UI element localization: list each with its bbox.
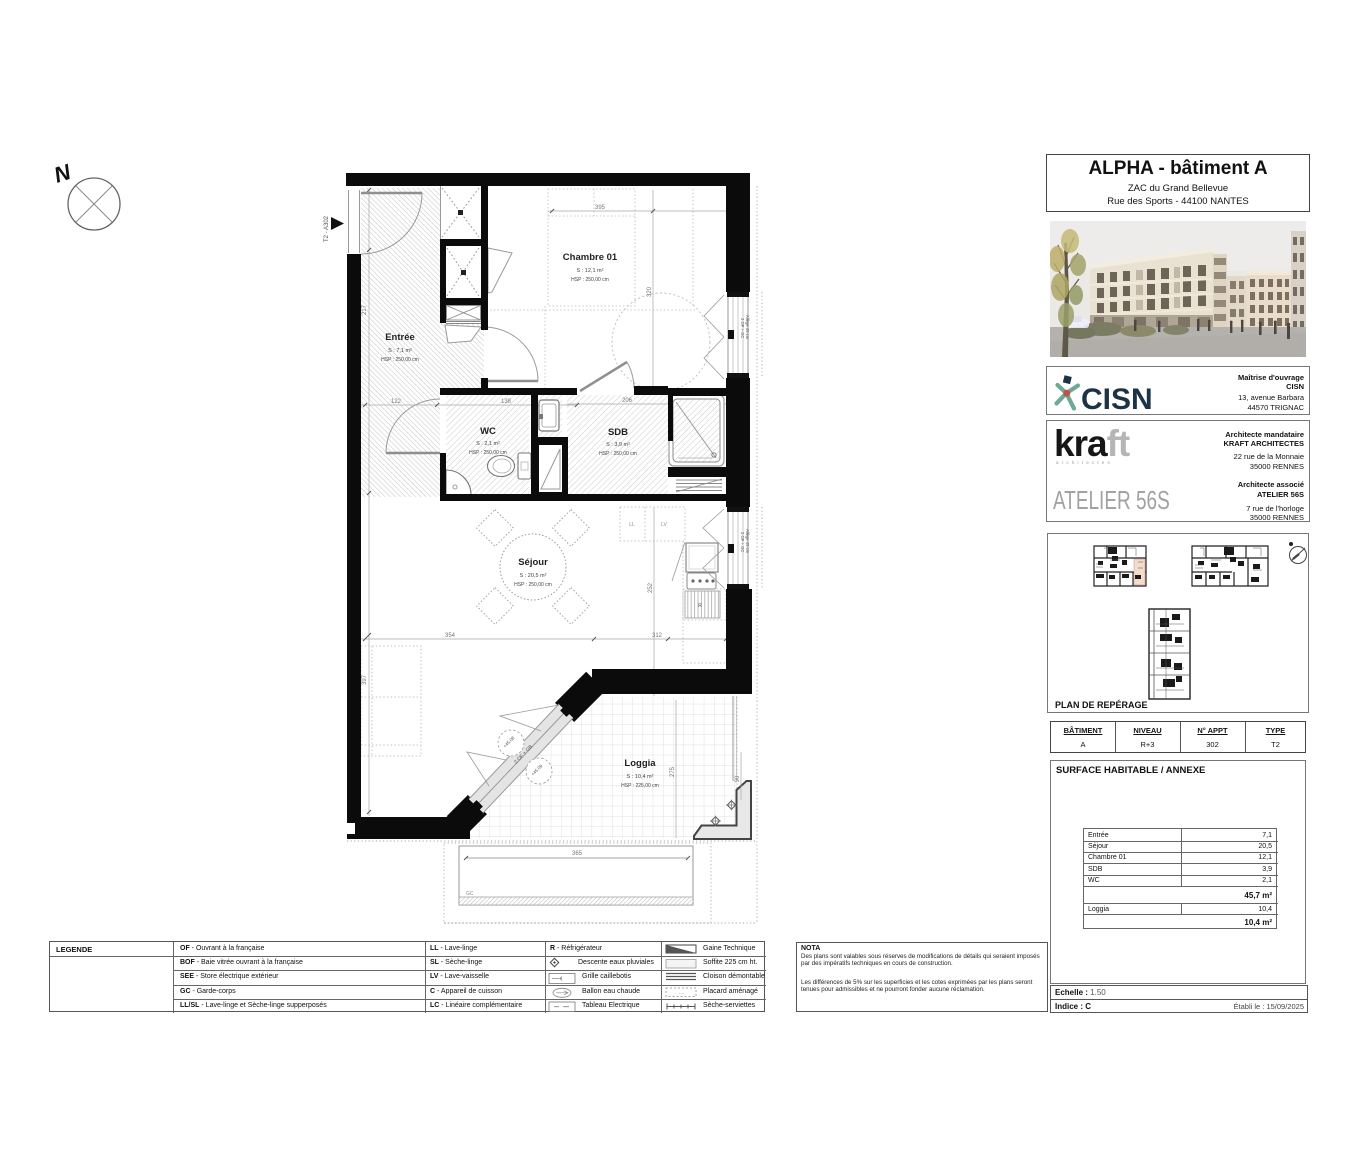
svg-text:WC: WC: [480, 426, 496, 437]
svg-text:S : 7,1 m²: S : 7,1 m²: [388, 348, 412, 354]
svg-text:HSP : 250,00 cm: HSP : 250,00 cm: [381, 357, 419, 363]
svg-text:122: 122: [391, 399, 402, 405]
svg-text:217: 217: [362, 304, 368, 315]
svg-text:395: 395: [595, 205, 606, 211]
svg-text:LL: LL: [629, 522, 635, 528]
svg-text:HSP : 225,00 cm: HSP : 225,00 cm: [621, 783, 659, 789]
svg-text:2 OF + GC: 2 OF + GC: [740, 318, 745, 338]
svg-text:2 OF + GC: 2 OF + GC: [740, 532, 745, 552]
svg-text:Loggia: Loggia: [624, 758, 656, 769]
svg-text:Allège 45 cm: Allège 45 cm: [745, 529, 750, 554]
svg-text:R: R: [698, 603, 702, 609]
svg-text:365: 365: [572, 851, 583, 857]
svg-text:320: 320: [647, 286, 653, 297]
svg-text:S : 20,5 m²: S : 20,5 m²: [520, 573, 547, 579]
svg-text:N: N: [51, 159, 75, 188]
svg-text:Séjour: Séjour: [518, 557, 548, 568]
svg-text:275: 275: [670, 766, 676, 777]
svg-text:S : 10,4 m²: S : 10,4 m²: [627, 774, 654, 780]
svg-text:Entrée: Entrée: [385, 332, 415, 343]
svg-text:S : 2,1 m²: S : 2,1 m²: [476, 441, 500, 447]
svg-text:HSP : 250,00 cm: HSP : 250,00 cm: [469, 450, 507, 456]
svg-text:SDB: SDB: [608, 427, 628, 438]
svg-text:S : 3,9 m²: S : 3,9 m²: [606, 442, 630, 448]
svg-text:397: 397: [362, 674, 368, 685]
svg-text:S : 12,1 m²: S : 12,1 m²: [577, 268, 604, 274]
svg-text:252: 252: [648, 582, 654, 593]
svg-text:Allège 45 cm: Allège 45 cm: [745, 315, 750, 340]
svg-text:354: 354: [445, 633, 456, 639]
svg-text:- -: - -: [679, 991, 684, 997]
svg-text:138: 138: [501, 399, 512, 405]
svg-text:206: 206: [622, 398, 633, 404]
svg-text:90: 90: [735, 775, 741, 782]
svg-text:HSP : 250,00 cm: HSP : 250,00 cm: [571, 277, 609, 283]
svg-text:LV: LV: [661, 522, 667, 528]
svg-text:Chambre 01: Chambre 01: [563, 252, 618, 263]
svg-text:HSP : 250,00 cm: HSP : 250,00 cm: [599, 451, 637, 457]
svg-text:GC: GC: [466, 891, 474, 897]
svg-text:HSP : 250,00 cm: HSP : 250,00 cm: [514, 582, 552, 588]
svg-text:T2 - A302: T2 - A302: [324, 215, 330, 242]
svg-text:312: 312: [652, 633, 663, 639]
